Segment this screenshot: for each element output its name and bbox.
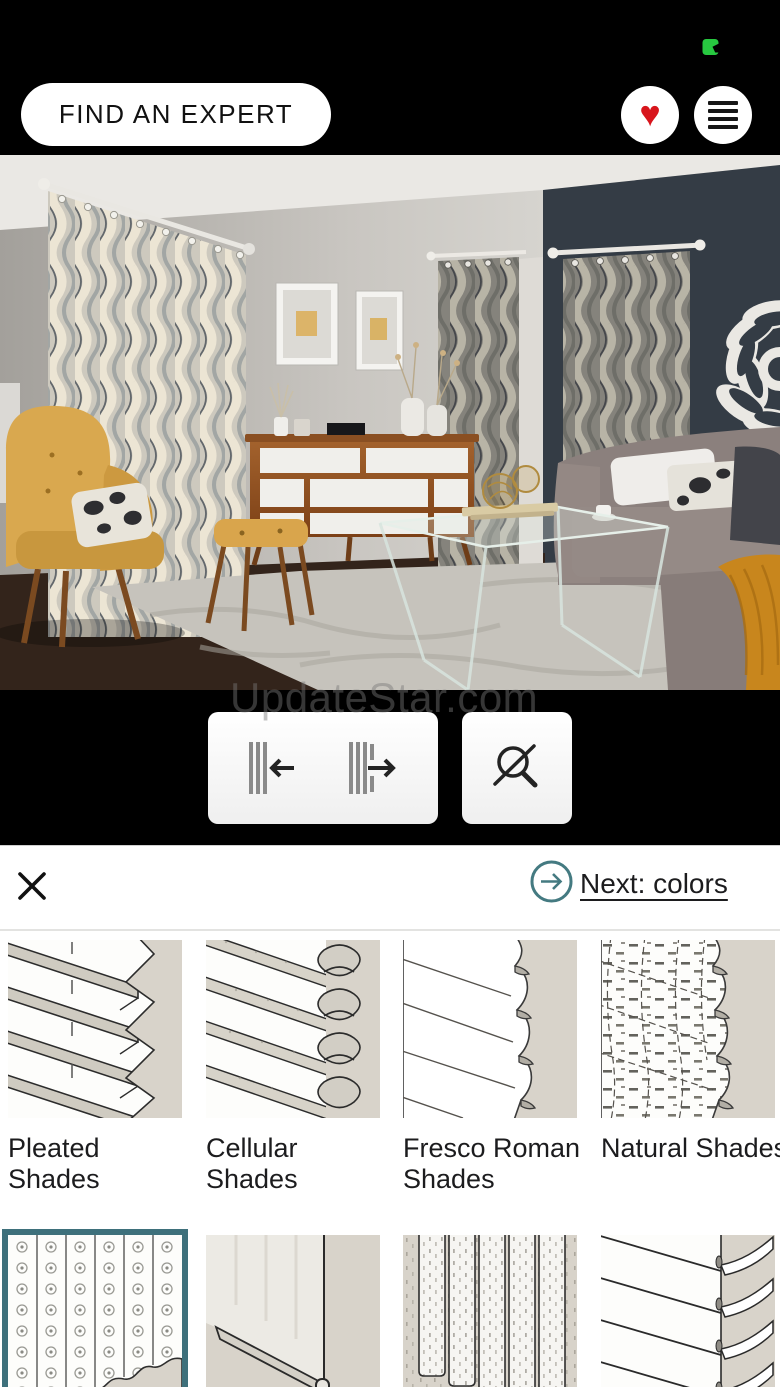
natural-shades-thumbnail[interactable] (601, 940, 775, 1118)
heart-icon: ♥ (639, 96, 660, 132)
green-app-indicator-icon (702, 38, 720, 56)
arrow-right-circle-icon (530, 860, 573, 903)
close-sheet-button[interactable] (16, 870, 48, 902)
tile-label-natural-shades: Natural Shades (601, 1133, 780, 1164)
cellular-shades-thumbnail[interactable] (206, 940, 380, 1118)
room-preview-photo[interactable] (0, 155, 780, 690)
drapes-open-right-icon (347, 740, 399, 796)
drapes-close-left-icon (247, 740, 299, 796)
close-icon (16, 870, 48, 902)
menu-button[interactable] (694, 86, 752, 144)
favorites-button[interactable]: ♥ (621, 86, 679, 144)
next-step-button[interactable] (530, 860, 573, 903)
close-drapes-button[interactable] (238, 712, 308, 824)
tile-label-pleated-shades: Pleated Shades (8, 1133, 198, 1195)
find-an-expert-button[interactable]: FIND AN EXPERT (21, 83, 331, 146)
drapes-toggle-group (208, 712, 438, 824)
tile-label-fresco-roman-shades: Fresco Roman Shades (403, 1133, 593, 1195)
patterned-drapery-thumbnail-selected[interactable] (2, 1229, 188, 1387)
zoom-off-button[interactable] (462, 712, 572, 824)
vertical-blinds-thumbnail[interactable] (403, 1235, 577, 1387)
open-drapes-button[interactable] (338, 712, 408, 824)
magnifier-crossed-icon (491, 742, 543, 794)
tile-label-cellular-shades: Cellular Shades (206, 1133, 396, 1195)
horizontal-blinds-thumbnail[interactable] (601, 1235, 775, 1387)
next-colors-link[interactable]: Next: colors (580, 868, 728, 900)
pleated-shades-thumbnail[interactable] (8, 940, 182, 1118)
fresco-roman-shades-thumbnail[interactable] (403, 940, 577, 1118)
visualizer-app: FIND AN EXPERT ♥ (0, 0, 780, 1387)
hamburger-menu-icon (708, 101, 738, 129)
sheet-divider (0, 929, 780, 931)
watermark-text: UpdateStar.com (230, 674, 538, 722)
viewer-controls (0, 712, 780, 824)
panel-track-thumbnail[interactable] (206, 1235, 380, 1387)
